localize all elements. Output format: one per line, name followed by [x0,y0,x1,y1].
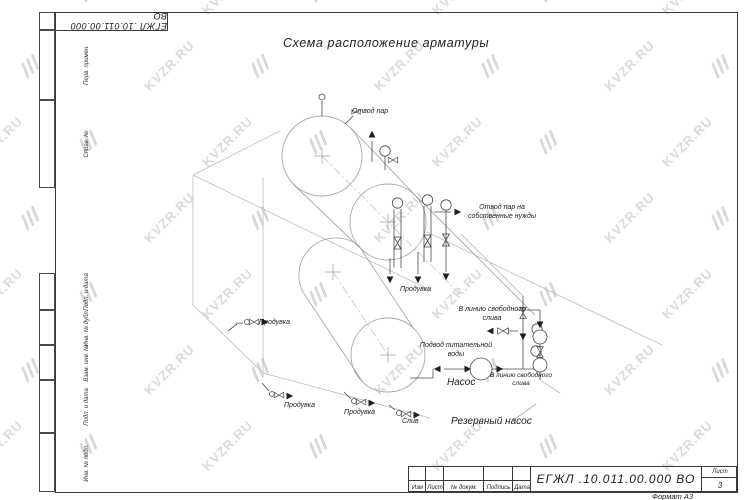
tb-label-doc: № докум. [444,482,484,493]
tb-sheet-label: Лист [702,467,738,478]
drawing-title: Схема расположение арматуры [283,36,489,50]
margin-label: Инв. № подл. [84,444,90,481]
margin-label: Взам. инв. № [84,344,90,381]
watermark-logo-icon [21,356,40,383]
drawing-frame [55,12,738,493]
margin-box-perv: Перв. примен. [39,30,55,100]
label-otvod-par-nuzhdy: Отвод пар на собственные нужды [458,203,546,221]
label-podvod-vody: Подвод питательной воды [418,341,494,359]
margin-box-invdubl: Инв. № дубл. [39,310,55,345]
tb-mid-line [409,480,531,481]
watermark-text: KVZR.RU [0,417,26,473]
watermark-logo-icon [539,0,558,3]
margin-label: Перв. примен. [84,45,90,85]
margin-label: Подп. и дата [84,388,90,426]
tb-label-list: Лист [426,482,444,493]
margin-box-podp1: Подп. и дата [39,273,55,310]
drawing-sheet: KVZR.RUKVZR.RUKVZR.RUKVZR.RUKVZR.RUKVZR.… [0,0,750,500]
label-rezervny-nasos: Резервный насос [451,415,532,428]
tb-designation: ЕГЖЛ .10.011.00.000 ВО [531,467,701,491]
format-note: Формат А3 [652,492,693,500]
label-otvod-par: Отвод пар [352,107,388,116]
watermark-logo-icon [21,204,40,231]
watermark-logo-icon [309,0,328,3]
tb-sheet-box: Лист 3 [701,467,738,491]
label-nasos: Насос [447,376,475,389]
margin-label: Подп. и дата [84,273,90,311]
tb-label-podpis: Подпись [484,482,513,493]
margin-label: Справ. № [84,130,90,157]
title-block: Изм Лист № докум. Подпись Дата ЕГЖЛ .10.… [408,466,737,492]
margin-box-sprav: Справ. № [39,100,55,188]
margin-box-invpodl: Инв. № подл. [39,433,55,492]
label-sliv: Слив [402,417,419,426]
rotated-designation-stamp: ЕГЖЛ .10.011.00.000 ВО [55,12,168,31]
margin-box-podp2: Подп. и дата [39,380,55,433]
margin-box-vzam: Взам. инв. № [39,345,55,380]
label-produvka-1: Продувка [284,401,315,410]
label-produvka-top: Продувка [400,285,431,294]
margin-box-blank [39,12,55,30]
label-produvka-left: Продувка [259,318,290,327]
watermark-logo-icon [79,0,98,3]
label-produvka-2: Продувка [344,408,375,417]
watermark-text: KVZR.RU [0,113,26,169]
tb-label-izm: Изм [409,482,426,493]
watermark-text: KVZR.RU [0,265,26,321]
watermark-text: KVZR.RU [0,0,26,18]
tb-label-data: Дата [513,482,531,493]
tb-sheet-number: 3 [702,478,738,492]
label-v-liniyu-sliva-2: В линию свободного слива [489,372,553,389]
label-v-liniyu-sliva-1: В линию свободного слива [452,305,532,323]
margin-label: Инв. № дубл. [84,309,90,346]
rotated-designation-text: ЕГЖЛ .10.011.00.000 ВО [55,11,167,31]
watermark-logo-icon [21,52,40,79]
